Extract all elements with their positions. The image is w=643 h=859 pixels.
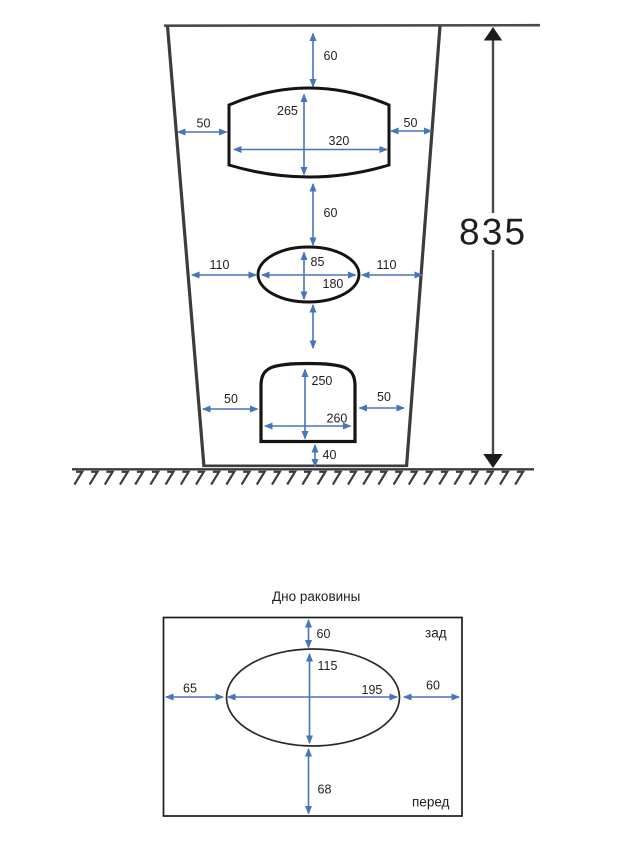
svg-text:195: 195 — [362, 683, 383, 697]
svg-text:110: 110 — [210, 258, 230, 272]
svg-text:60: 60 — [317, 627, 331, 641]
svg-text:180: 180 — [323, 277, 344, 291]
svg-text:50: 50 — [224, 392, 238, 406]
svg-text:перед: перед — [412, 795, 450, 810]
svg-text:68: 68 — [318, 783, 332, 797]
svg-text:110: 110 — [377, 258, 397, 272]
svg-text:265: 265 — [277, 104, 298, 118]
svg-text:60: 60 — [324, 206, 338, 220]
svg-text:85: 85 — [311, 255, 325, 269]
svg-text:60: 60 — [324, 49, 338, 63]
svg-text:835: 835 — [459, 212, 527, 253]
svg-text:60: 60 — [426, 679, 440, 693]
svg-text:зад: зад — [425, 626, 447, 641]
svg-text:50: 50 — [377, 390, 391, 404]
svg-text:65: 65 — [183, 682, 197, 696]
svg-text:40: 40 — [323, 448, 337, 462]
svg-text:50: 50 — [404, 116, 418, 130]
svg-text:115: 115 — [318, 659, 338, 673]
svg-text:320: 320 — [329, 134, 350, 148]
svg-text:Дно раковины: Дно раковины — [272, 589, 360, 604]
svg-text:260: 260 — [327, 412, 348, 426]
svg-text:50: 50 — [197, 117, 211, 131]
svg-text:250: 250 — [312, 374, 333, 388]
